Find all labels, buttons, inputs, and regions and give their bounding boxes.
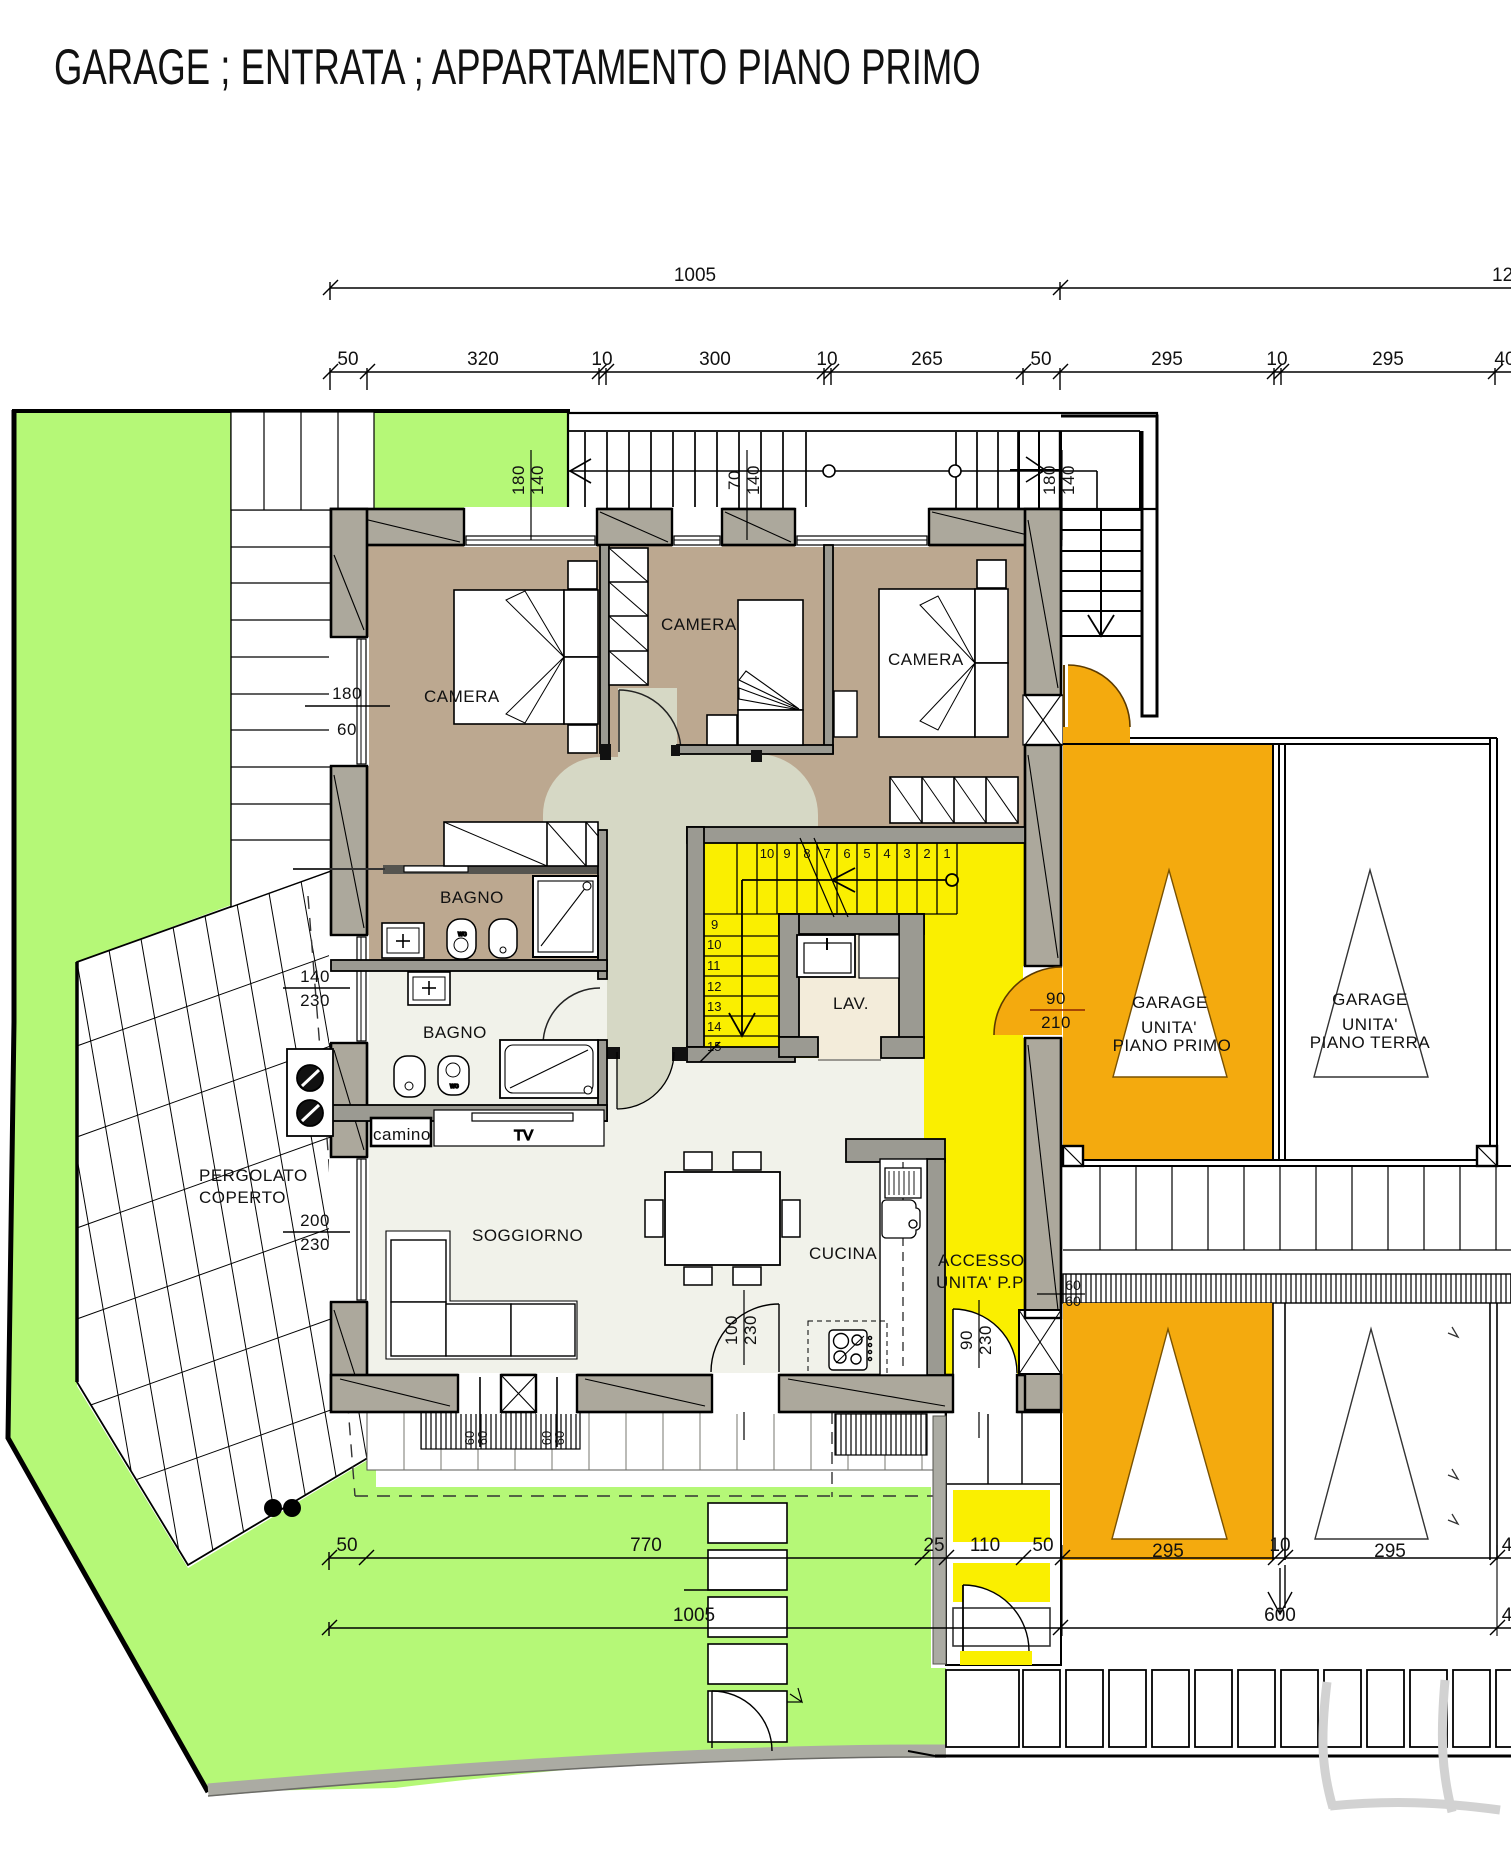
svg-text:UNITA' P.P: UNITA' P.P	[936, 1273, 1024, 1292]
svg-text:CUCINA: CUCINA	[809, 1244, 877, 1263]
svg-text:9: 9	[711, 917, 718, 932]
svg-text:10: 10	[707, 937, 721, 952]
svg-text:180: 180	[1040, 465, 1059, 495]
svg-text:200: 200	[300, 1211, 330, 1230]
svg-text:10: 10	[816, 349, 837, 370]
svg-text:GARAGE: GARAGE	[1132, 993, 1208, 1012]
svg-text:60: 60	[1065, 1277, 1081, 1293]
svg-text:600: 600	[1264, 1605, 1296, 1626]
svg-text:UNITA': UNITA'	[1342, 1015, 1398, 1034]
svg-text:2: 2	[923, 846, 930, 861]
svg-text:GARAGE: GARAGE	[1332, 990, 1408, 1009]
svg-text:295: 295	[1372, 349, 1404, 370]
svg-text:1: 1	[943, 846, 950, 861]
svg-text:LAV.: LAV.	[833, 994, 869, 1013]
svg-text:90: 90	[957, 1330, 976, 1350]
svg-text:PERGOLATO: PERGOLATO	[199, 1166, 308, 1185]
svg-text:CAMERA: CAMERA	[888, 650, 964, 669]
svg-text:CAMERA: CAMERA	[661, 615, 737, 634]
svg-text:6: 6	[843, 846, 850, 861]
svg-text:3: 3	[903, 846, 910, 861]
svg-text:265: 265	[911, 349, 943, 370]
svg-text:40: 40	[1494, 349, 1511, 370]
svg-text:90: 90	[1046, 989, 1066, 1008]
svg-text:14: 14	[707, 1019, 721, 1034]
svg-text:12: 12	[707, 979, 721, 994]
svg-text:ACCESSO: ACCESSO	[938, 1251, 1025, 1270]
svg-text:12: 12	[1492, 265, 1511, 286]
svg-text:100: 100	[722, 1315, 741, 1345]
svg-text:1005: 1005	[673, 1605, 715, 1626]
svg-text:295: 295	[1374, 1541, 1406, 1562]
svg-text:50: 50	[1032, 1535, 1053, 1556]
svg-text:SOGGIORNO: SOGGIORNO	[472, 1226, 583, 1245]
svg-text:BAGNO: BAGNO	[440, 888, 504, 907]
svg-text:4: 4	[883, 846, 890, 861]
svg-text:4: 4	[1502, 1605, 1511, 1626]
svg-text:295: 295	[1151, 349, 1183, 370]
svg-text:180: 180	[332, 684, 362, 703]
svg-text:230: 230	[300, 1235, 330, 1254]
svg-text:230: 230	[300, 991, 330, 1010]
svg-text:10: 10	[760, 846, 774, 861]
svg-text:300: 300	[699, 349, 731, 370]
svg-text:10: 10	[591, 349, 612, 370]
svg-text:60: 60	[475, 1431, 490, 1445]
svg-text:60: 60	[1065, 1293, 1081, 1309]
svg-text:10: 10	[1269, 1535, 1290, 1556]
svg-text:15: 15	[707, 1039, 721, 1054]
svg-text:wc: wc	[449, 1083, 459, 1090]
svg-text:TV: TV	[514, 1127, 533, 1144]
svg-text:UNITA': UNITA'	[1141, 1018, 1197, 1037]
svg-text:10: 10	[1266, 349, 1287, 370]
svg-text:BAGNO: BAGNO	[423, 1023, 487, 1042]
svg-text:11: 11	[707, 958, 721, 973]
svg-text:CAMERA: CAMERA	[424, 687, 500, 706]
svg-text:7: 7	[823, 846, 830, 861]
svg-text:5: 5	[863, 846, 870, 861]
svg-text:camino: camino	[373, 1125, 431, 1144]
svg-text:320: 320	[467, 349, 499, 370]
svg-text:295: 295	[1152, 1541, 1184, 1562]
svg-text:1005: 1005	[674, 265, 716, 286]
svg-text:140: 140	[300, 967, 330, 986]
svg-text:60: 60	[337, 720, 357, 739]
svg-text:25: 25	[923, 1535, 944, 1556]
svg-text:180: 180	[509, 465, 528, 495]
svg-text:wc: wc	[457, 931, 467, 938]
svg-text:70: 70	[725, 470, 744, 490]
svg-text:4: 4	[1502, 1535, 1511, 1556]
svg-text:770: 770	[630, 1535, 662, 1556]
svg-text:50: 50	[337, 349, 358, 370]
svg-text:210: 210	[1041, 1013, 1071, 1032]
svg-text:GARAGE ; ENTRATA ; APPARTAMENT: GARAGE ; ENTRATA ; APPARTAMENTO PIANO PR…	[54, 39, 981, 95]
svg-text:PIANO TERRA: PIANO TERRA	[1310, 1033, 1431, 1052]
svg-text:PIANO PRIMO: PIANO PRIMO	[1113, 1036, 1232, 1055]
svg-text:110: 110	[970, 1535, 1000, 1556]
svg-text:13: 13	[707, 999, 721, 1014]
svg-text:60: 60	[552, 1431, 567, 1445]
svg-text:9: 9	[783, 846, 790, 861]
svg-text:50: 50	[1030, 349, 1051, 370]
svg-text:COPERTO: COPERTO	[199, 1188, 286, 1207]
svg-text:50: 50	[336, 1535, 357, 1556]
